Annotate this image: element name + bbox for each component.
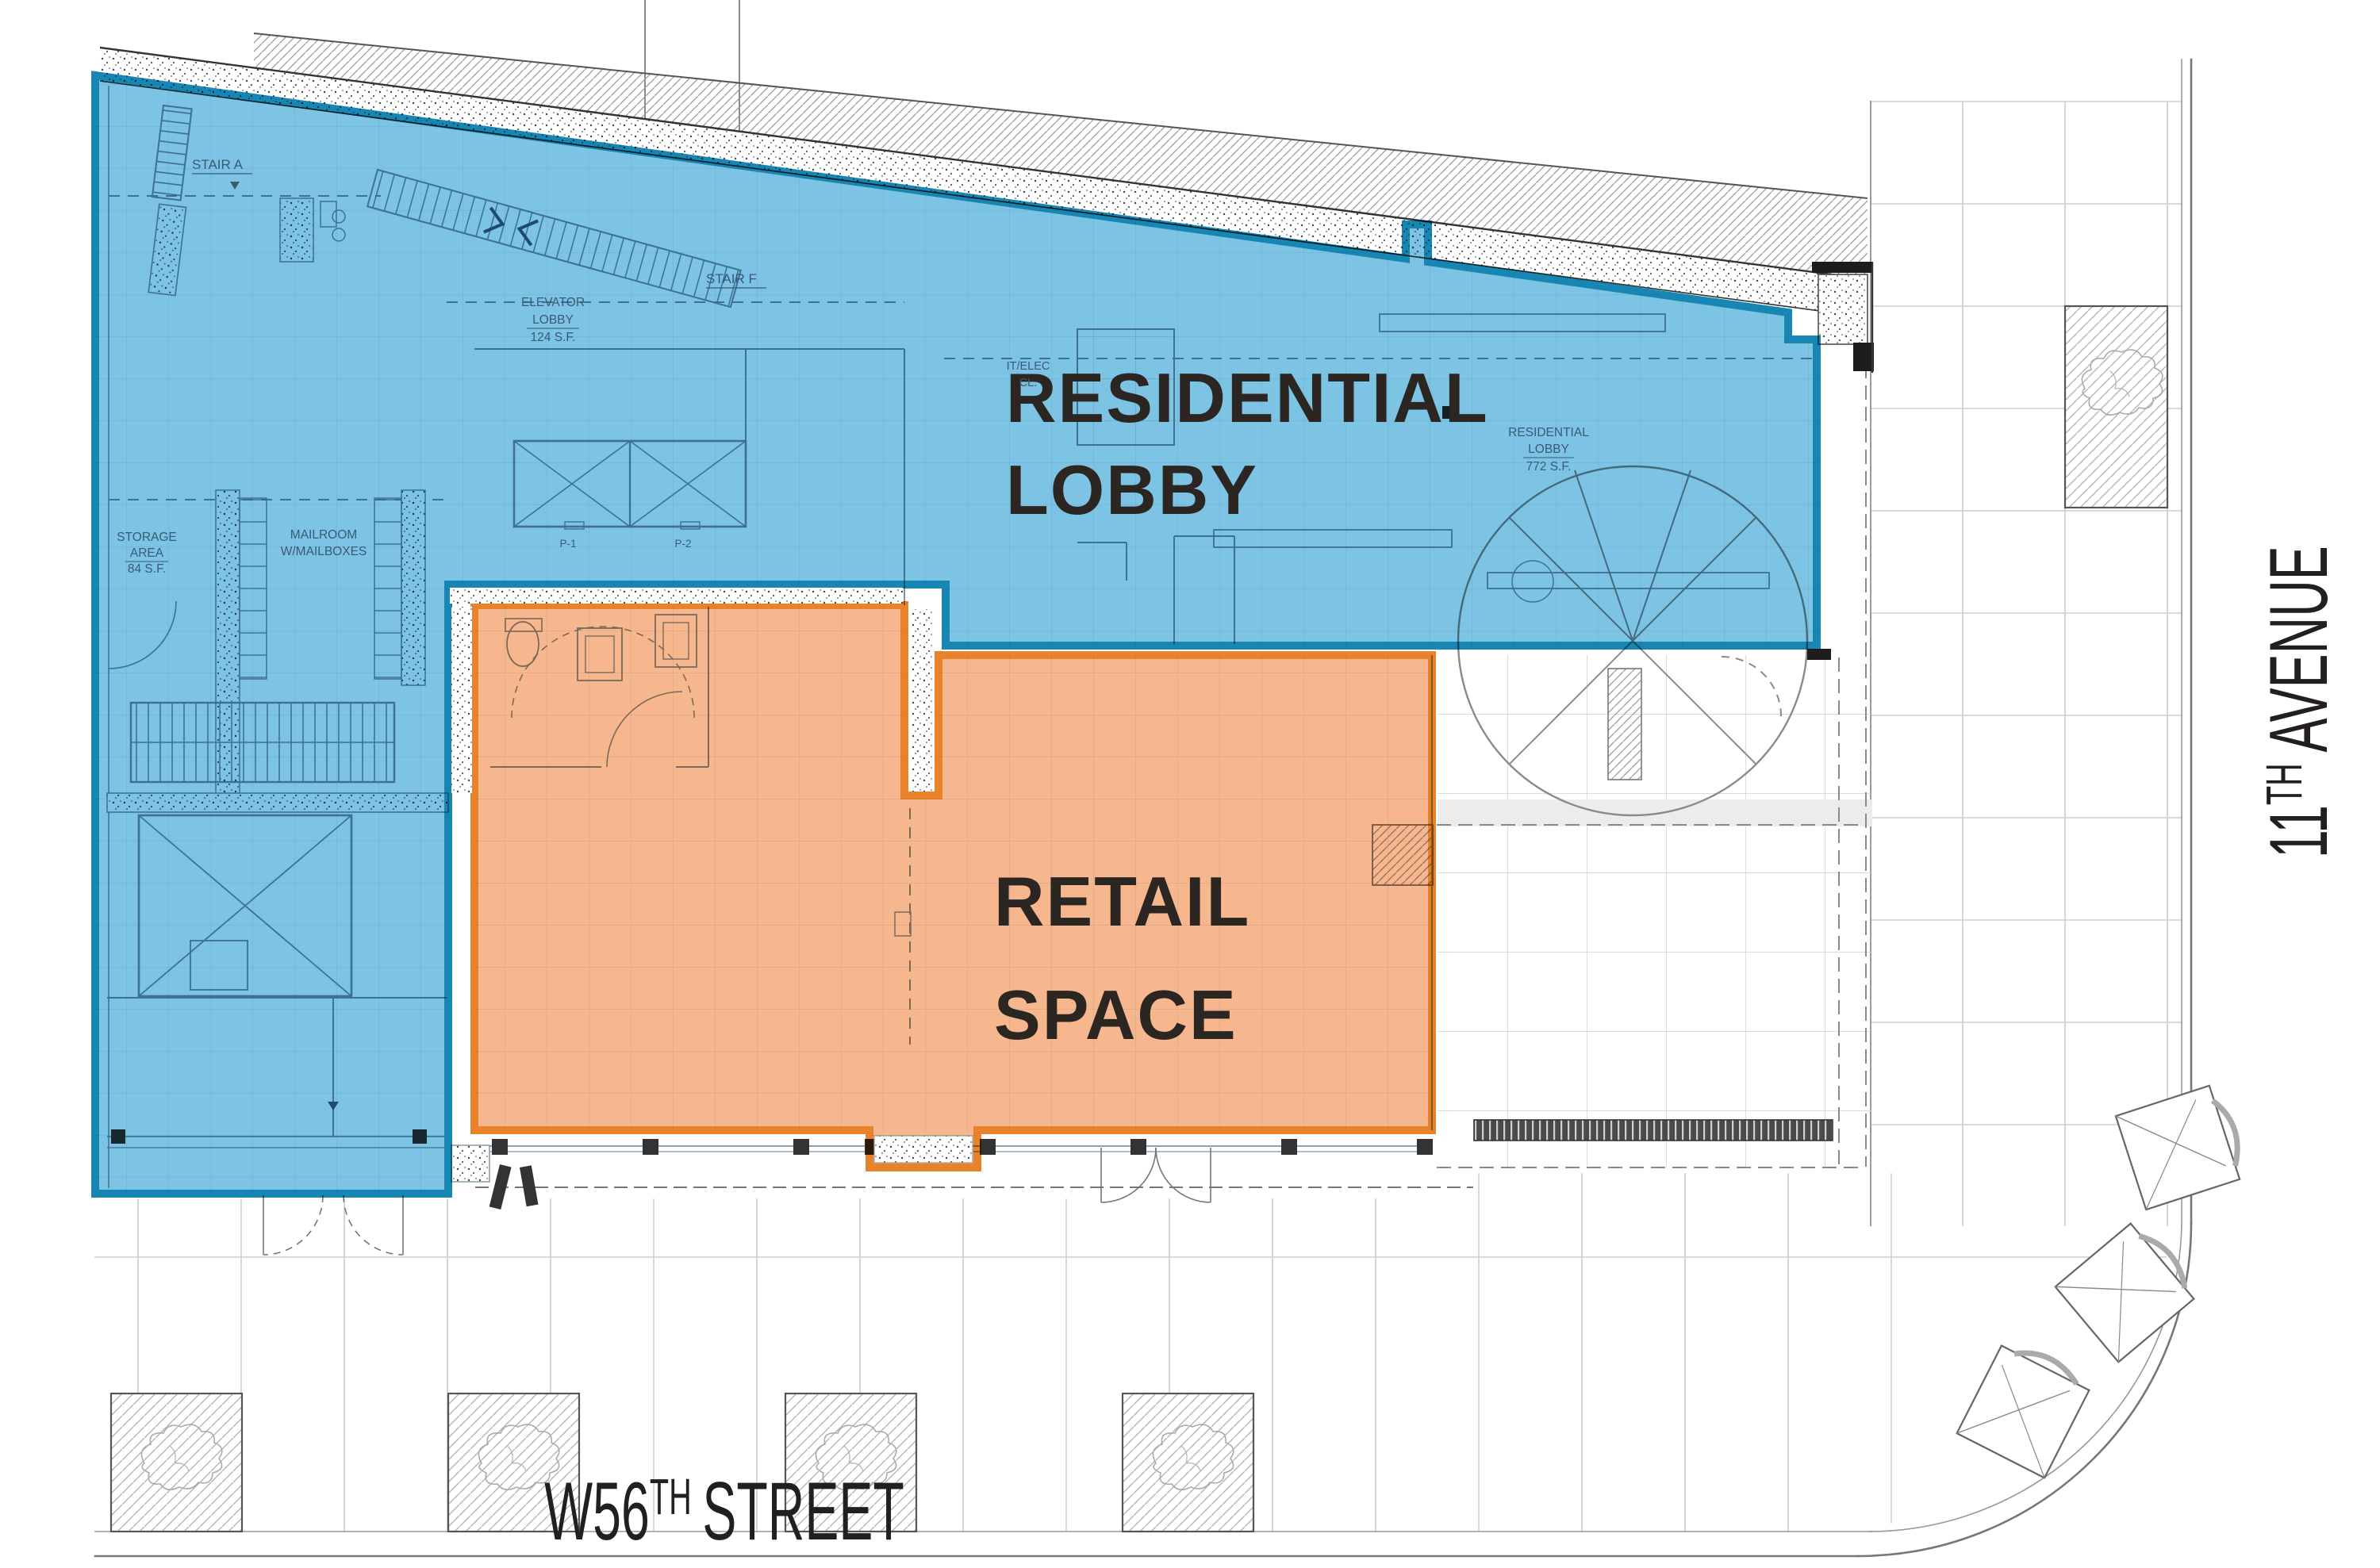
svg-text:11THAVENUE: 11THAVENUE bbox=[2253, 546, 2344, 858]
stair-f-label: STAIR F bbox=[706, 271, 757, 286]
avenue-prefix: 11 bbox=[2253, 805, 2344, 858]
svg-text:W56THSTREET: W56THSTREET bbox=[544, 1466, 904, 1557]
east-tree-pit bbox=[2065, 306, 2167, 508]
plaza-paving-grid bbox=[1438, 655, 1872, 1167]
street-name-w56: W56THSTREET bbox=[544, 1466, 904, 1557]
svg-text:124 S.F.: 124 S.F. bbox=[531, 331, 576, 344]
elevator-lobby-label: ELEVATOR bbox=[521, 296, 585, 309]
elevator-p1-label: P-1 bbox=[559, 538, 576, 550]
street-prefix: W56 bbox=[544, 1466, 650, 1557]
svg-text:LOBBY: LOBBY bbox=[532, 313, 574, 327]
storage-label: STORAGE bbox=[117, 531, 177, 544]
street-rest: STREET bbox=[702, 1466, 904, 1557]
svg-text:772 S.F.: 772 S.F. bbox=[1526, 460, 1572, 473]
svg-text:W/MAILBOXES: W/MAILBOXES bbox=[281, 545, 367, 558]
elevator-p2-label: P-2 bbox=[674, 538, 691, 550]
floor-plan-diagram: RESIDENTIAL LOBBY RETAIL SPACE STAIR A S… bbox=[0, 0, 2380, 1568]
east-sidewalk-grid bbox=[1871, 102, 2182, 1225]
it-elec-label: IT/ELEC bbox=[1007, 360, 1050, 373]
street-name-11th-ave: 11THAVENUE bbox=[2253, 546, 2344, 858]
retail-space-overlay bbox=[474, 605, 1432, 1167]
stair-a-label: STAIR A bbox=[192, 157, 244, 172]
retail-space-label-line2: SPACE bbox=[994, 976, 1238, 1054]
retail-entry-doors bbox=[1101, 1148, 1211, 1202]
svg-text:CL.: CL. bbox=[1019, 377, 1038, 389]
retail-space-label-line1: RETAIL bbox=[994, 862, 1250, 941]
northeast-corner-block bbox=[1812, 262, 1874, 373]
street-sup: TH bbox=[650, 1470, 692, 1526]
svg-text:AREA: AREA bbox=[130, 546, 164, 560]
avenue-sup: TH bbox=[2257, 763, 2313, 805]
mailroom-label: MAILROOM bbox=[290, 528, 357, 542]
svg-text:84 S.F.: 84 S.F. bbox=[128, 562, 166, 576]
residential-lobby-sm-label: RESIDENTIAL bbox=[1508, 426, 1589, 439]
plaza-gray-band bbox=[1438, 799, 1872, 826]
svg-text:LOBBY: LOBBY bbox=[1528, 443, 1569, 456]
avenue-rest: AVENUE bbox=[2253, 546, 2344, 752]
residential-lobby-label-line2: LOBBY bbox=[1006, 450, 1258, 529]
sidewalk-grate bbox=[1474, 1120, 1833, 1141]
residential-lobby-label-line1: RESIDENTIAL bbox=[1006, 358, 1489, 437]
